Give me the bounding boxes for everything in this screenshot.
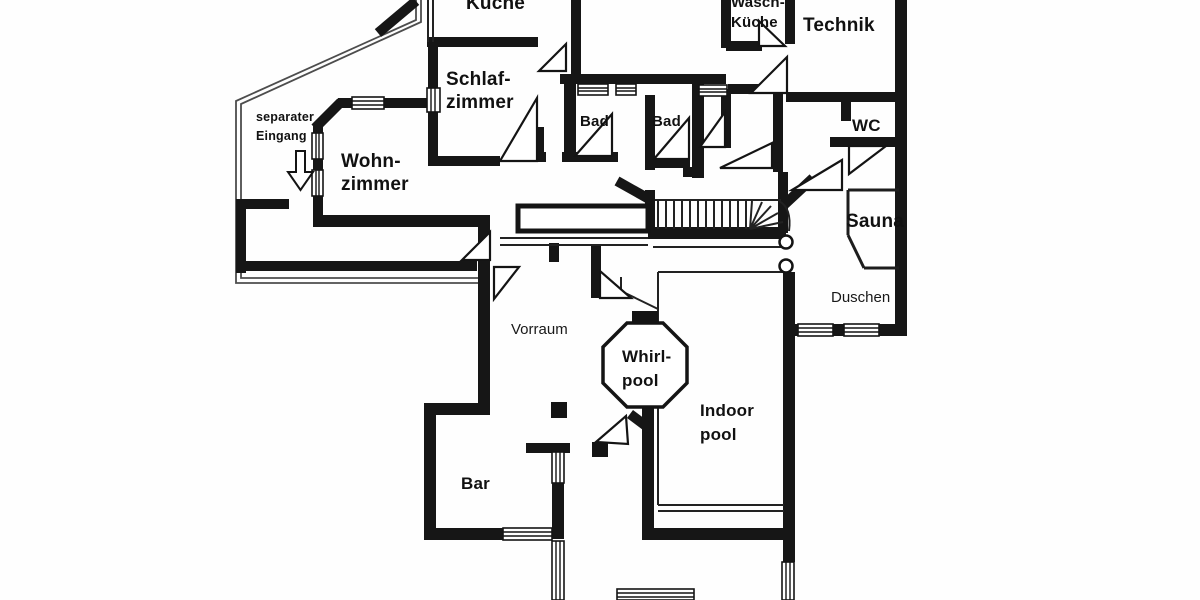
hall-counter xyxy=(518,206,648,231)
staircase xyxy=(658,201,783,229)
room-label-wohnzimmer-1: Wohn- xyxy=(341,151,401,172)
room-label-schlafzimmer-1: Schlaf- xyxy=(446,69,511,90)
room-label-indoorpool-1: Indoor xyxy=(700,401,754,420)
room-label-technik: Technik xyxy=(803,15,875,36)
room-label-bar: Bar xyxy=(461,474,490,493)
floor-plan-page: Küche Schlaf- zimmer Wasch- Küche Techni… xyxy=(0,0,1200,600)
room-label-wohnzimmer-2: zimmer xyxy=(341,174,409,195)
walls-thick xyxy=(241,0,907,562)
room-label-vorraum: Vorraum xyxy=(511,321,568,338)
column xyxy=(780,260,793,273)
room-label-schlafzimmer-2: zimmer xyxy=(446,92,514,113)
room-label-indoorpool-2: pool xyxy=(700,425,737,444)
pillar xyxy=(551,402,567,418)
label-separater-eingang-2: Eingang xyxy=(256,129,307,143)
floor-plan-drawing: Küche Schlaf- zimmer Wasch- Küche Techni… xyxy=(0,0,1200,600)
room-label-bad-right: Bad xyxy=(652,113,681,130)
room-label-waschkueche-2: Küche xyxy=(731,14,778,31)
room-label-kueche: Küche xyxy=(466,0,525,14)
room-label-waschkueche-1: Wasch- xyxy=(731,0,785,11)
room-label-whirlpool-2: pool xyxy=(622,371,659,390)
room-label-bad-left: Bad xyxy=(580,113,609,130)
room-label-wc: WC xyxy=(852,116,881,135)
pillar xyxy=(592,442,608,457)
column xyxy=(780,236,793,249)
room-label-whirlpool-1: Whirl- xyxy=(622,347,671,366)
room-label-duschen: Duschen xyxy=(831,289,890,306)
label-separater-eingang-1: separater xyxy=(256,110,314,124)
entrance-arrow-icon xyxy=(288,151,313,190)
room-label-sauna: Sauna xyxy=(846,211,904,232)
